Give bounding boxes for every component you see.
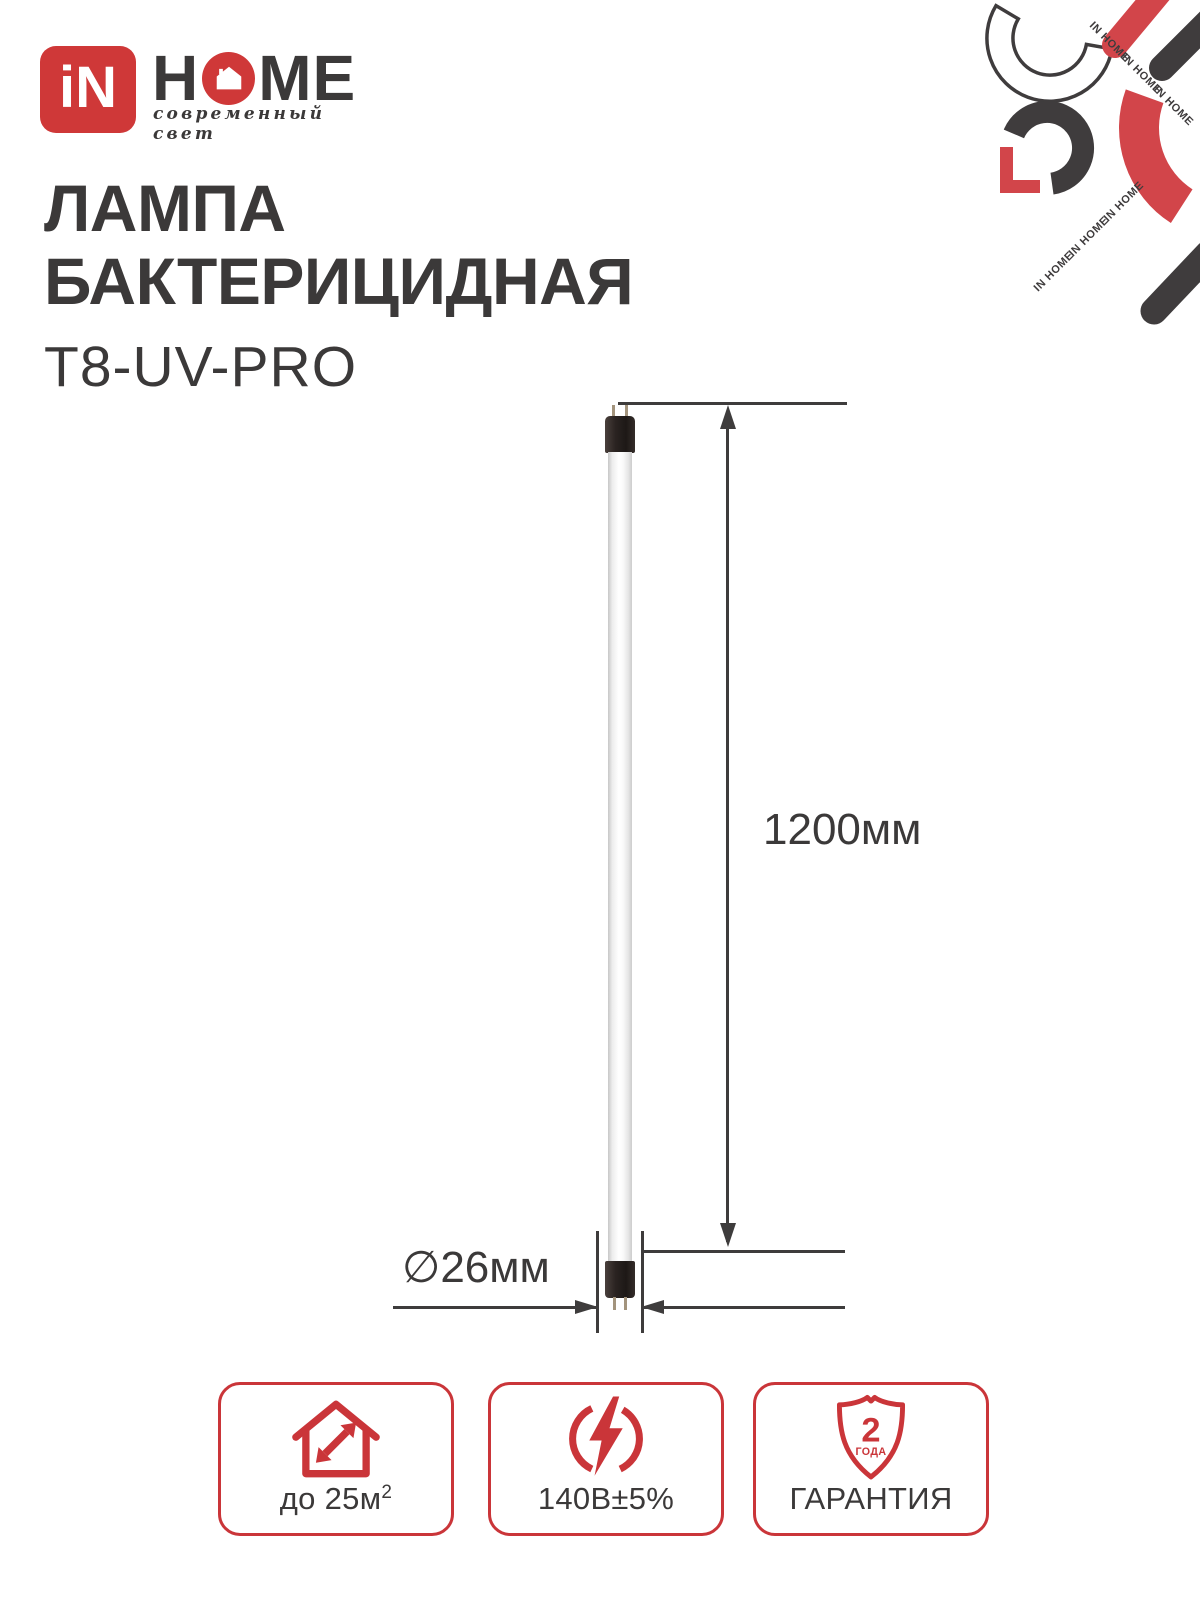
logo-home-wordmark: H ME [152,49,356,107]
house-icon [213,62,245,94]
diameter-extension-line-left [596,1231,599,1333]
lamp-pin [624,1297,627,1310]
feature-area-sup: 2 [381,1482,392,1503]
logo-in-text: iN [59,59,117,121]
pattern-text: IN HOME [1032,249,1077,294]
feature-voltage-box: 140В±5% [488,1382,724,1536]
product-model: T8-UV-PRO [44,334,357,400]
diameter-dimension-line-right [641,1306,845,1309]
lamp-pin [613,1297,616,1310]
lamp-cap-bottom [605,1261,635,1298]
pattern-red-corner [1000,147,1040,193]
pattern-text: IN HOME [1067,214,1112,259]
brand-logo-mark: iN [40,46,136,133]
pattern-red-stripe-top [1115,0,1165,45]
pattern-dark-ring [1014,112,1083,184]
product-title: ЛАМПА БАКТЕРИЦИДНАЯ [44,172,633,318]
pattern-text: IN HOME [1102,179,1147,224]
lightning-circle-icon [562,1393,650,1481]
feature-area-label: до 25м2 [221,1481,451,1517]
warranty-unit-label: ГОДА [856,1446,887,1458]
pattern-dark-stripe-bottom [1154,254,1200,311]
arrow-right-icon [575,1300,598,1314]
lamp-tube [608,452,632,1262]
brand-tagline: современный свет [153,104,373,144]
diameter-label: ∅26мм [402,1242,550,1293]
length-dimension-line [726,414,729,1242]
arrow-left-icon [641,1300,664,1314]
feature-area-box: до 25м2 [218,1382,454,1536]
pattern-outline-arc [987,6,1112,102]
lamp-cap-top [605,416,635,453]
product-title-line2: БАКТЕРИЦИДНАЯ [44,245,633,318]
product-sheet: iN H ME современный свет IN HOME IN HOME… [0,0,1200,1600]
feature-warranty-box: 2 ГОДА ГАРАНТИЯ [753,1382,989,1536]
feature-warranty-label: ГАРАНТИЯ [756,1481,986,1517]
length-extension-line-bottom [643,1250,845,1253]
warranty-years-label: 2 [861,1411,880,1449]
shield-warranty-icon: 2 ГОДА [830,1392,912,1484]
home-o-circle [202,52,255,105]
pattern-dark-stripe-top [1162,18,1200,68]
length-label: 1200мм [763,805,921,855]
product-title-line1: ЛАМПА [44,172,633,245]
house-expand-icon [290,1397,382,1481]
arrow-down-icon [720,1223,736,1247]
arrow-up-icon [720,405,736,429]
diameter-extension-line-right [641,1231,644,1333]
feature-area-text: до 25м [280,1481,382,1516]
brand-pattern: IN HOME IN HOME IN HOME IN HOME IN HOME … [950,0,1200,330]
diameter-dimension-line-left [393,1306,597,1309]
feature-voltage-label: 140В±5% [491,1481,721,1517]
